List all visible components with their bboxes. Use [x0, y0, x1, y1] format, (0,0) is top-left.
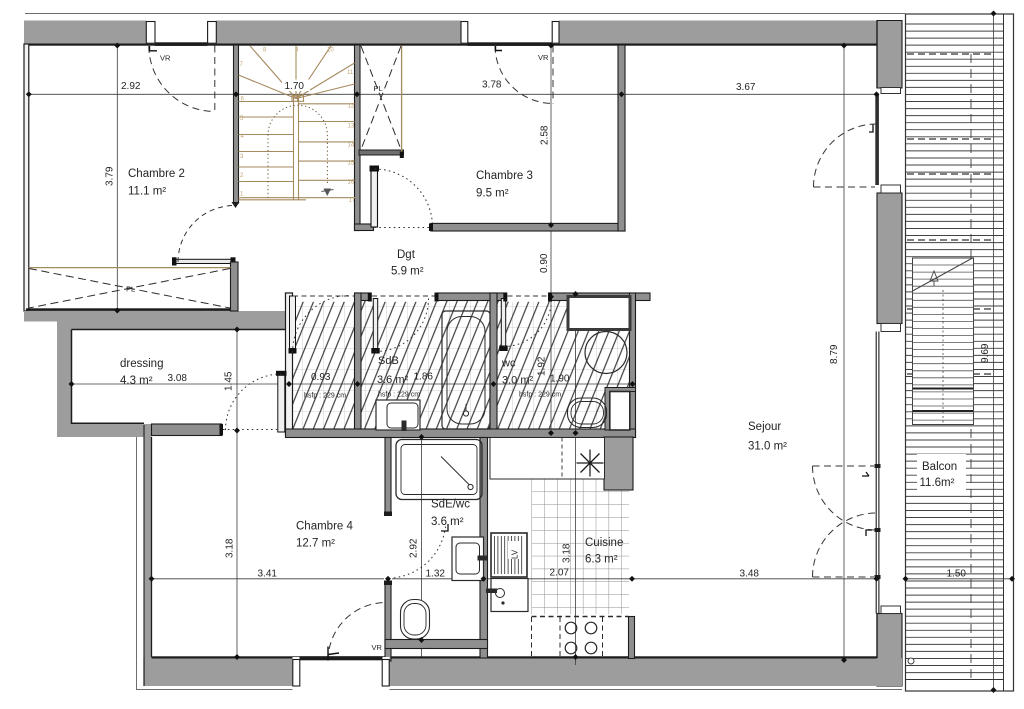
- svg-text:Chambre 3: Chambre 3: [476, 170, 533, 182]
- svg-text:1.86: 1.86: [414, 372, 434, 383]
- svg-text:Chambre 4: Chambre 4: [296, 521, 353, 533]
- svg-text:3.48: 3.48: [740, 569, 760, 580]
- svg-text:9.5 m²: 9.5 m²: [476, 188, 509, 200]
- svg-text:12.7 m²: 12.7 m²: [296, 538, 335, 550]
- svg-text:11: 11: [347, 70, 354, 76]
- svg-text:3.41: 3.41: [258, 569, 278, 580]
- svg-text:8: 8: [263, 48, 267, 54]
- svg-text:1.45: 1.45: [224, 371, 235, 391]
- svg-text:1.90: 1.90: [550, 374, 570, 385]
- svg-text:Balcon: Balcon: [922, 461, 957, 473]
- svg-text:SdE/wc: SdE/wc: [431, 499, 470, 511]
- svg-text:15: 15: [348, 161, 355, 167]
- svg-text:SdB: SdB: [378, 355, 399, 367]
- svg-text:Chambre 2: Chambre 2: [128, 168, 185, 180]
- svg-text:3.67: 3.67: [736, 82, 756, 93]
- svg-text:2.92: 2.92: [121, 81, 141, 92]
- svg-text:Sejour: Sejour: [748, 421, 781, 433]
- svg-text:2.92: 2.92: [409, 538, 420, 558]
- svg-text:14: 14: [348, 143, 355, 149]
- svg-text:LV: LV: [511, 549, 520, 559]
- svg-text:3.08: 3.08: [168, 373, 188, 384]
- svg-text:hsfp : 229 cm: hsfp : 229 cm: [519, 392, 561, 399]
- svg-text:PL: PL: [126, 285, 135, 294]
- svg-text:1.50: 1.50: [947, 569, 967, 580]
- svg-text:12: 12: [348, 104, 355, 110]
- svg-text:17: 17: [349, 198, 356, 204]
- svg-text:16: 16: [348, 180, 355, 186]
- svg-text:13: 13: [348, 124, 355, 130]
- svg-text:1.70: 1.70: [285, 81, 305, 92]
- svg-text:hsfp : 229 cm: hsfp : 229 cm: [304, 393, 346, 400]
- svg-text:2: 2: [240, 173, 244, 179]
- svg-text:7: 7: [240, 62, 244, 68]
- svg-text:9: 9: [295, 48, 299, 54]
- svg-text:10: 10: [327, 48, 334, 54]
- svg-text:hsfp : 229 cm: hsfp : 229 cm: [378, 392, 420, 399]
- svg-text:3.78: 3.78: [482, 80, 502, 91]
- svg-text:11.6m²: 11.6m²: [920, 477, 955, 489]
- svg-text:6.3 m²: 6.3 m²: [585, 554, 618, 566]
- svg-text:3.0 m²: 3.0 m²: [502, 375, 534, 387]
- svg-text:9.69: 9.69: [980, 343, 991, 363]
- svg-text:4.3 m²: 4.3 m²: [120, 375, 153, 387]
- svg-text:2.07: 2.07: [550, 568, 570, 579]
- svg-text:3: 3: [240, 154, 244, 160]
- svg-text:VR: VR: [538, 53, 549, 62]
- svg-text:3.18: 3.18: [562, 543, 573, 563]
- svg-text:Dgt: Dgt: [397, 249, 416, 261]
- svg-text:PL: PL: [374, 84, 383, 93]
- svg-text:VR: VR: [160, 54, 171, 63]
- svg-text:Cuisine: Cuisine: [585, 537, 623, 549]
- svg-text:3.79: 3.79: [105, 166, 116, 186]
- svg-text:VR: VR: [372, 643, 383, 652]
- svg-text:8.79: 8.79: [829, 344, 840, 364]
- svg-text:1.92: 1.92: [537, 356, 548, 376]
- svg-text:3.6 m²: 3.6 m²: [377, 374, 409, 386]
- svg-text:1: 1: [240, 192, 244, 198]
- svg-text:0.90: 0.90: [539, 253, 550, 273]
- svg-text:0.93: 0.93: [311, 372, 331, 383]
- svg-text:dressing: dressing: [120, 358, 163, 370]
- svg-text:wc: wc: [501, 358, 516, 370]
- svg-text:3.18: 3.18: [225, 538, 236, 558]
- svg-text:11.1 m²: 11.1 m²: [128, 186, 166, 198]
- svg-text:31.0 m²: 31.0 m²: [748, 441, 787, 453]
- svg-text:5.9 m²: 5.9 m²: [391, 266, 424, 278]
- svg-text:2.58: 2.58: [540, 125, 551, 145]
- svg-text:3.6 m²: 3.6 m²: [431, 516, 464, 528]
- svg-text:1.32: 1.32: [426, 569, 446, 580]
